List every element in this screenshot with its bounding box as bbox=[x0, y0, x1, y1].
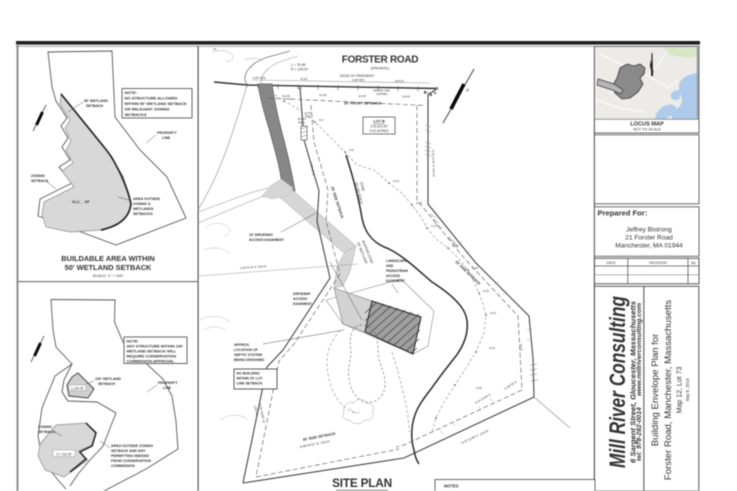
svg-text:WETLANDS: WETLANDS bbox=[133, 207, 154, 211]
svg-text:SETBACK: SETBACK bbox=[38, 430, 56, 434]
svg-text:BEING DESIGNED: BEING DESIGNED bbox=[234, 358, 265, 362]
svg-text:FORSTER ROAD: FORSTER ROAD bbox=[342, 55, 418, 66]
svg-text:SETBACK: SETBACK bbox=[86, 104, 104, 108]
svg-text:A-22: A-22 bbox=[490, 311, 496, 315]
svg-text:DATE: DATE bbox=[606, 261, 616, 265]
svg-text:WITHIN 25' LOT: WITHIN 25' LOT bbox=[237, 377, 264, 381]
svg-text:tel: 978-282-0014 www.mil: tel: 978-282-0014 www.millriverconsultin… bbox=[637, 302, 643, 461]
svg-text:175,023 SF: 175,023 SF bbox=[370, 125, 388, 129]
svg-text:17,716 SF: 17,716 SF bbox=[56, 452, 72, 456]
svg-text:20' FRONT SETBACK: 20' FRONT SETBACK bbox=[344, 102, 382, 106]
svg-text:Jeffrey Bistrong: Jeffrey Bistrong bbox=[626, 227, 672, 234]
svg-text:S 88°30'E: S 88°30'E bbox=[352, 78, 365, 82]
svg-text:21 Forster Road: 21 Forster Road bbox=[625, 235, 673, 242]
svg-text:N 87°12'E: N 87°12'E bbox=[253, 76, 266, 80]
svg-text:A-8: A-8 bbox=[349, 148, 354, 152]
svg-text:A-26: A-26 bbox=[476, 386, 482, 390]
svg-text:Mill River Consulting: Mill River Consulting bbox=[605, 296, 630, 468]
svg-text:4.02 ACRES: 4.02 ACRES bbox=[369, 129, 389, 133]
svg-text:50' WETLAND: 50' WETLAND bbox=[84, 99, 108, 103]
svg-text:BUILDABLE AREA WITHIN: BUILDABLE AREA WITHIN bbox=[61, 254, 154, 263]
svg-text:SCALE: 1" = 100': SCALE: 1" = 100' bbox=[93, 273, 124, 278]
svg-text:A-4: A-4 bbox=[288, 97, 293, 101]
svg-text:LINE: LINE bbox=[163, 386, 172, 390]
svg-text:104.22': 104.22' bbox=[395, 79, 405, 83]
svg-text:A-24: A-24 bbox=[489, 346, 495, 350]
svg-text:13+00: 13+00 bbox=[402, 95, 410, 99]
svg-text:FROM CONSERVATION: FROM CONSERVATION bbox=[111, 459, 151, 463]
svg-text:PROPERTY: PROPERTY bbox=[157, 131, 177, 135]
svg-text:A-14: A-14 bbox=[431, 224, 437, 228]
svg-text:Manchester, MA 01944: Manchester, MA 01944 bbox=[615, 243, 683, 250]
svg-text:12+00: 12+00 bbox=[358, 94, 366, 98]
svg-text:AND: AND bbox=[386, 264, 394, 268]
svg-text:DRIVEWAY: DRIVEWAY bbox=[293, 292, 312, 296]
svg-text:ZONING: ZONING bbox=[31, 174, 45, 178]
svg-text:52.11': 52.11' bbox=[519, 344, 524, 352]
svg-text:100' WETLAND: 100' WETLAND bbox=[95, 377, 121, 381]
svg-text:15' DRIVEWAY: 15' DRIVEWAY bbox=[249, 233, 274, 237]
svg-text:ZONING &: ZONING & bbox=[133, 202, 151, 206]
svg-text:L = 75.48': L = 75.48' bbox=[291, 63, 306, 67]
svg-text:Building Envelope Plan for: Building Envelope Plan for bbox=[650, 333, 661, 446]
svg-text:11+00: 11+00 bbox=[319, 93, 327, 97]
svg-text:A-20: A-20 bbox=[483, 289, 489, 293]
svg-text:SITE PLAN: SITE PLAN bbox=[332, 476, 392, 490]
svg-text:NOTE:: NOTE: bbox=[125, 90, 137, 95]
svg-text:10: 10 bbox=[213, 47, 217, 51]
svg-text:ZONING: ZONING bbox=[38, 425, 52, 429]
svg-text:SETBACK AND ANY: SETBACK AND ANY bbox=[111, 449, 146, 453]
svg-text:1,134 SF: 1,134 SF bbox=[71, 386, 84, 390]
svg-text:NOTES: NOTES bbox=[444, 484, 459, 489]
svg-text:(PRIVATE): (PRIVATE) bbox=[371, 67, 390, 71]
svg-text:76.05': 76.05' bbox=[300, 77, 308, 81]
svg-text:R = 125.00': R = 125.00' bbox=[291, 68, 309, 72]
svg-text:LINE: LINE bbox=[162, 136, 171, 140]
svg-text:AREA OUTSIDE ZONING: AREA OUTSIDE ZONING bbox=[111, 444, 153, 448]
svg-text:PEDESTRIAN: PEDESTRIAN bbox=[386, 269, 408, 273]
svg-text:NO BUILDING: NO BUILDING bbox=[237, 372, 260, 376]
svg-text:PROPERTY: PROPERTY bbox=[158, 381, 178, 385]
svg-text:WELL: WELL bbox=[298, 121, 306, 125]
svg-text:CAPPED: CAPPED bbox=[376, 92, 388, 96]
svg-text:AREA OUTSIDE: AREA OUTSIDE bbox=[133, 197, 161, 201]
svg-text:APPROX.: APPROX. bbox=[234, 343, 250, 347]
svg-text:41,2__ SF: 41,2__ SF bbox=[72, 200, 90, 204]
svg-text:May 8, 2019: May 8, 2019 bbox=[685, 378, 690, 402]
svg-text:Forster Road, Manchester, Mass: Forster Road, Manchester, Massachusetts bbox=[663, 300, 674, 480]
svg-text:COMMISSION: COMMISSION bbox=[111, 464, 135, 468]
svg-text:ACCESS: ACCESS bbox=[386, 274, 401, 278]
svg-text:A-6: A-6 bbox=[319, 118, 324, 122]
svg-text:ACCESS: ACCESS bbox=[293, 297, 308, 301]
svg-text:SETBACKS: SETBACKS bbox=[125, 112, 147, 117]
svg-text:COMMISSION APPROVAL: COMMISSION APPROVAL bbox=[127, 358, 175, 363]
svg-text:A-18: A-18 bbox=[472, 266, 478, 270]
svg-text:REVISION: REVISION bbox=[649, 261, 667, 265]
svg-text:LOT B: LOT B bbox=[373, 120, 385, 124]
svg-text:PERMITTING NEEDED: PERMITTING NEEDED bbox=[111, 454, 150, 458]
svg-text:SETBACKS: SETBACKS bbox=[133, 212, 153, 216]
svg-text:LINE SETBACK: LINE SETBACK bbox=[237, 382, 263, 386]
svg-text:WITHIN 50' WETLAND SETBACK: WITHIN 50' WETLAND SETBACK bbox=[125, 101, 187, 106]
svg-text:Prepared For:: Prepared For: bbox=[598, 209, 648, 218]
svg-text:A-10: A-10 bbox=[393, 179, 399, 183]
svg-text:LANDSCAPE: LANDSCAPE bbox=[386, 259, 408, 263]
svg-text:EASEMENT: EASEMENT bbox=[386, 279, 406, 283]
svg-text:EASEMENT: EASEMENT bbox=[293, 302, 313, 306]
svg-text:LOCATION OF: LOCATION OF bbox=[234, 348, 259, 352]
svg-text:A-12: A-12 bbox=[416, 201, 422, 205]
svg-text:NOT TO SCALE: NOT TO SCALE bbox=[633, 128, 661, 132]
svg-text:LOCUS MAP: LOCUS MAP bbox=[630, 121, 664, 127]
svg-text:50' WETLAND SETBACK: 50' WETLAND SETBACK bbox=[65, 263, 152, 272]
svg-text:By: By bbox=[691, 261, 695, 265]
svg-text:ACCESS EASEMENT: ACCESS EASEMENT bbox=[249, 238, 285, 242]
svg-text:NO STRUCTURE ALLOWED: NO STRUCTURE ALLOWED bbox=[125, 96, 178, 101]
svg-text:SETBACK: SETBACK bbox=[98, 382, 116, 386]
svg-text:OR RELEVANT ZONING: OR RELEVANT ZONING bbox=[125, 107, 170, 112]
svg-text:SEPTIC SYSTEM: SEPTIC SYSTEM bbox=[234, 353, 262, 357]
svg-text:Map 12, Lot 73: Map 12, Lot 73 bbox=[677, 367, 684, 414]
